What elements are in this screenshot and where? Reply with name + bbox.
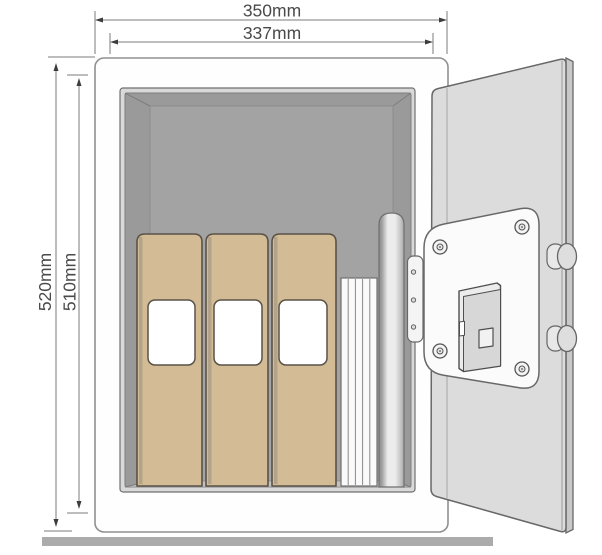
bracket-screw xyxy=(411,298,415,302)
document-tube xyxy=(379,213,404,487)
binder-spine-shade xyxy=(274,237,278,484)
binder-3 xyxy=(272,234,336,486)
arrow-up-icon xyxy=(77,78,82,86)
binder-label-window xyxy=(214,300,262,365)
binder-1 xyxy=(137,234,202,486)
door-strike-bracket xyxy=(408,256,424,342)
inner-height-label: 510mm xyxy=(60,253,80,311)
binder-spine-shade xyxy=(208,237,212,484)
bracket-screw xyxy=(411,325,415,329)
safe-dimension-diagram: 350mm 337mm 520mm 510mm xyxy=(0,0,602,555)
bracket-screw xyxy=(411,270,415,274)
outer-width-label: 350mm xyxy=(243,1,301,21)
panel-square xyxy=(479,328,493,348)
plate-screw-bottom-right xyxy=(515,362,529,376)
binders xyxy=(137,234,336,486)
arrow-right-icon xyxy=(439,18,447,23)
plate-screw-bottom-left xyxy=(433,344,447,358)
binder-spine-shade xyxy=(139,237,143,484)
locking-bolt-upper xyxy=(547,244,577,270)
outer-height-label: 520mm xyxy=(35,253,55,311)
binder-2 xyxy=(206,234,268,486)
plate-screw-top-left xyxy=(433,240,447,254)
inner-width-label: 337mm xyxy=(243,23,301,43)
keypad-panel xyxy=(459,283,501,372)
dimension-inner-height: 510mm xyxy=(60,75,89,513)
arrow-right-icon xyxy=(425,40,433,45)
arrow-left-icon xyxy=(110,40,118,45)
panel-slot xyxy=(460,321,465,336)
arrow-up-icon xyxy=(54,63,59,71)
dimension-inner-width: 337mm xyxy=(110,23,433,54)
plate-screw-top-right xyxy=(515,220,529,234)
floor-bar xyxy=(42,537,493,546)
binder-label-window xyxy=(279,300,327,365)
binder-label-window xyxy=(148,300,195,365)
arrow-down-icon xyxy=(77,501,82,509)
door-edge-face xyxy=(566,58,573,533)
arrow-left-icon xyxy=(95,18,103,23)
lock-plate xyxy=(424,208,539,388)
locking-bolt-lower xyxy=(547,326,577,352)
arrow-down-icon xyxy=(54,519,59,527)
safe-door xyxy=(408,58,577,533)
document-stack xyxy=(341,278,377,486)
safe-body xyxy=(95,58,448,532)
